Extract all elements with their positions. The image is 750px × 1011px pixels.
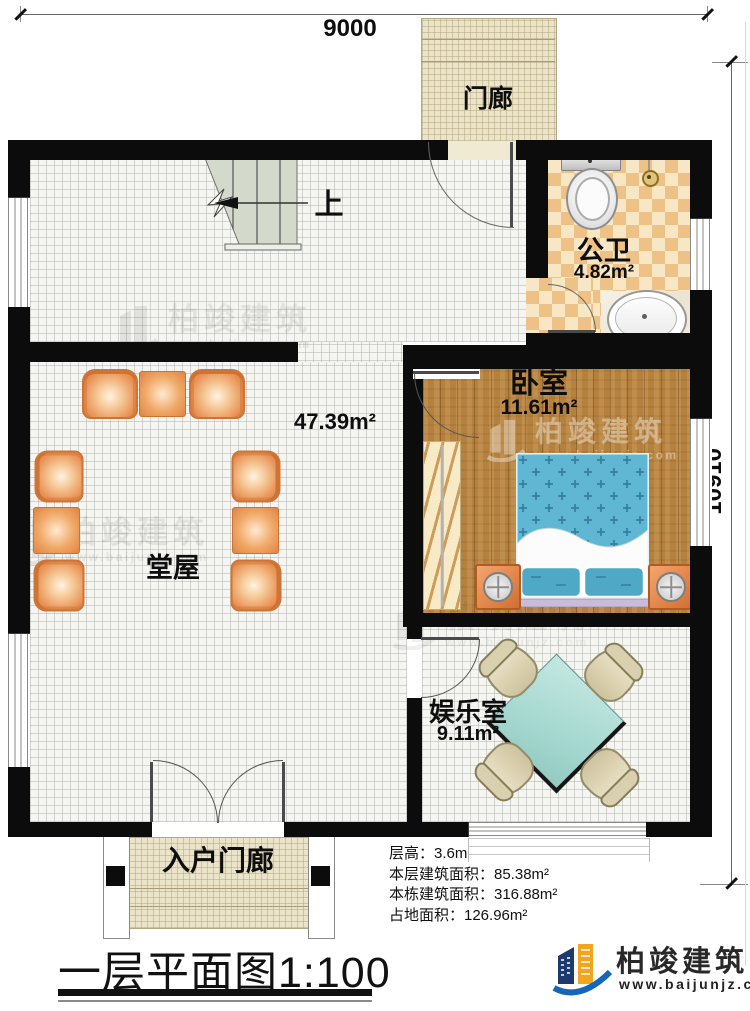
window-left-lower <box>8 633 30 771</box>
armchair <box>231 560 282 612</box>
wall-bottom-left <box>8 822 152 837</box>
label-bedroom: 卧室 <box>503 369 575 399</box>
info-footprint-area: 占地面积：126.96m² <box>389 906 629 927</box>
label-entry-porch: 入户门廊 <box>150 846 286 875</box>
floorplan-page: 9000 10910 门廊 入户门廊 柏竣建筑 www.baijunjz.com… <box>0 0 750 1011</box>
wall-ent-left-lower <box>407 698 422 822</box>
label-entertainment-area: 9.11m² <box>434 724 502 745</box>
clothes-rack <box>423 441 461 610</box>
logo-icon <box>550 936 616 1000</box>
label-porch-top: 门廊 <box>436 86 540 112</box>
entry-porch-step-line <box>128 888 308 889</box>
wall-bedroom-left <box>403 369 423 615</box>
nightstand-knob <box>656 572 686 602</box>
porch-step-line <box>421 61 555 62</box>
window-left-upper <box>8 197 30 311</box>
toilet-bowl-inner <box>575 177 610 221</box>
stairs <box>198 153 312 257</box>
armchair <box>35 451 84 503</box>
nightstand <box>475 564 521 610</box>
window-bathroom <box>690 218 712 294</box>
porch-column-block <box>311 866 330 886</box>
wall-top-left <box>8 140 448 160</box>
wall-bedroom-top <box>403 345 712 369</box>
window-bottom <box>468 822 650 837</box>
nightstand <box>648 564 694 610</box>
logo: 柏竣建筑 www.baijunjz.com <box>550 936 748 1000</box>
armchair <box>82 369 138 419</box>
info-floor-area: 本层建筑面积：85.38m² <box>389 865 629 886</box>
logo-url: www.baijunjz.com <box>619 976 750 992</box>
armchair <box>189 369 245 419</box>
info-building-area: 本栋建筑面积：316.88m² <box>389 885 629 906</box>
info-floor-height: 层高：3.6m <box>389 844 629 865</box>
plan-info: 层高：3.6m 本层建筑面积：85.38m² 本栋建筑面积：316.88m² 占… <box>389 844 629 926</box>
wall-left-upper <box>8 140 30 200</box>
wall-hall-divider <box>8 342 298 362</box>
label-bathroom-area: 4.82m² <box>558 263 650 283</box>
label-hall-area: 47.39m² <box>285 411 385 434</box>
page-edge-line <box>745 22 746 966</box>
wall-ent-left-upper <box>407 613 422 639</box>
ceiling-lamp <box>642 170 659 187</box>
ceiling-lamp-dot <box>647 175 651 179</box>
sink-drain <box>642 314 647 319</box>
label-hall: 堂屋 <box>138 554 208 582</box>
porch-top-floor <box>421 18 557 142</box>
entry-porch-step-line <box>128 906 308 907</box>
wall-right-1 <box>690 140 712 220</box>
label-stairs-up: 上 <box>312 190 346 220</box>
window-bedroom <box>690 418 712 550</box>
double-bed <box>516 453 649 607</box>
dim-right-ext-bottom <box>700 884 748 885</box>
armchair <box>34 560 85 612</box>
porch-step-line <box>421 39 555 40</box>
wall-right-3 <box>690 546 712 837</box>
dim-right-line <box>731 62 732 886</box>
armchair <box>232 451 281 503</box>
title-underline-thick <box>58 989 372 996</box>
label-entertainment: 娱乐室 <box>426 699 510 726</box>
label-bathroom: 公卫 <box>558 237 650 265</box>
wall-bedroom-ent-divider <box>403 613 712 627</box>
wall-bottom-middle <box>284 822 468 837</box>
porch-column-block <box>106 866 125 886</box>
nightstand-knob <box>483 572 513 602</box>
side-table <box>33 507 80 554</box>
title-underline-thin <box>58 1000 372 1002</box>
label-bedroom-area: 11.61m² <box>494 397 584 419</box>
logo-brand: 柏竣建筑 <box>616 938 748 980</box>
wall-bathroom-left <box>526 140 548 278</box>
side-table <box>139 371 186 417</box>
dim-top-label: 9000 <box>300 17 400 42</box>
side-table <box>232 507 279 554</box>
